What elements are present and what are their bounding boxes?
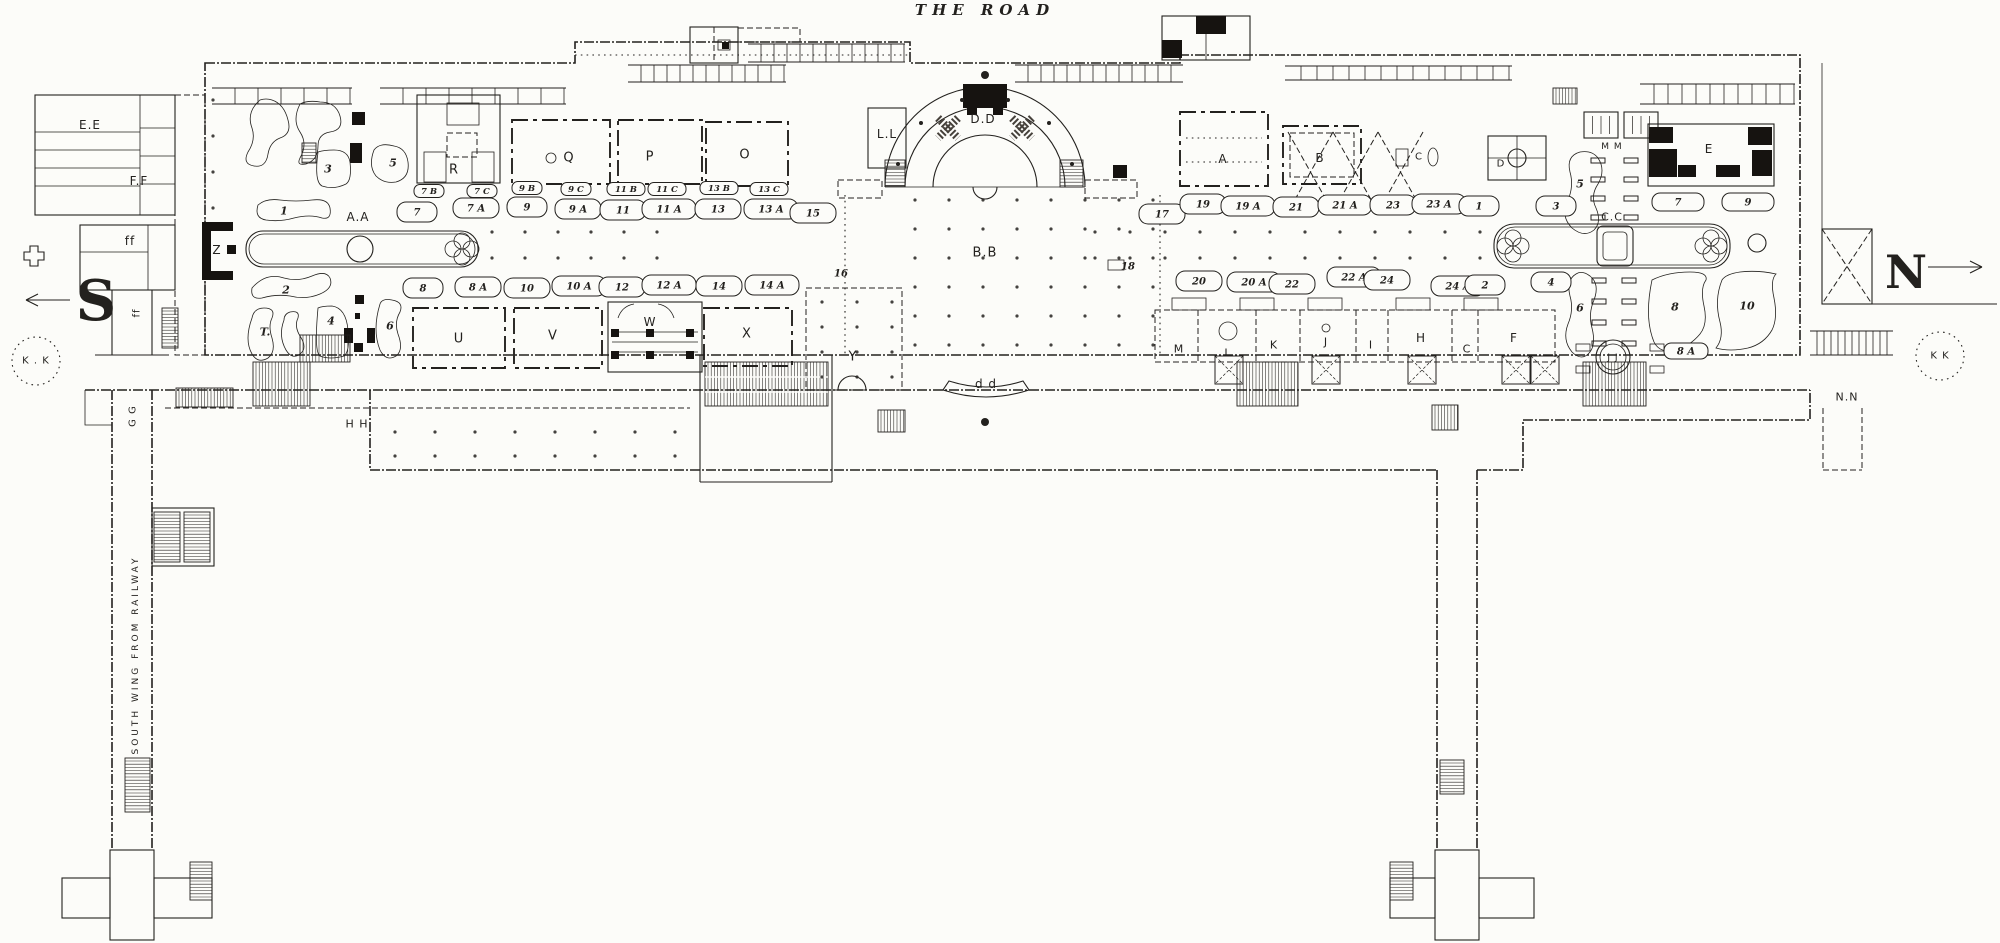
label-r8: 8 (1671, 301, 1679, 314)
label-text-n12a: 12 A (656, 281, 681, 292)
column-dots (1083, 227, 1086, 230)
garden-benches (1624, 196, 1638, 201)
label-wing-text: SOUTH WING FROM RAILWAY (131, 555, 141, 754)
label-n11a: 11 A (642, 199, 696, 219)
label-text-court-r: R (449, 163, 459, 178)
label-n23: 23 (1370, 195, 1416, 215)
label-r9: 9 (1722, 193, 1774, 211)
column-dots (1070, 162, 1074, 166)
label-s13c: 13 C (750, 183, 788, 196)
column-dots (473, 454, 476, 457)
label-n16: 16 (834, 269, 848, 280)
label-r5: 5 (1576, 178, 1584, 191)
label-south-s: S (76, 268, 116, 334)
column-dots (890, 375, 893, 378)
column-dots (1338, 256, 1341, 259)
fountain-basin-cc (1494, 224, 1730, 268)
label-text-n24: 24 (1379, 276, 1394, 287)
label-text-court-b: B (1315, 151, 1324, 165)
label-court-q: Q (563, 151, 574, 166)
label-text-n13a: 13 A (758, 205, 783, 216)
fountain-basin-aa (454, 233, 470, 249)
right-end-structures (24, 246, 44, 266)
label-text-court-u: U (454, 332, 465, 347)
label-text-n21: 21 (1288, 203, 1303, 214)
label-text-court-o: O (739, 148, 750, 163)
label-n17: 17 (1139, 204, 1185, 224)
label-s13b: 13 B (700, 182, 738, 195)
label-n8: 8 (403, 278, 443, 298)
column-dots (820, 325, 823, 328)
label-text-court-j: J (1323, 336, 1328, 349)
label-text-n2: 2 (1481, 281, 1489, 292)
fountain-basin-aa (246, 231, 479, 267)
label-text-r10: 10 (1739, 300, 1755, 313)
label-n2: 2 (1465, 275, 1505, 295)
upper-courts (1180, 112, 1268, 186)
right-end-structures (1928, 261, 1982, 273)
crossed-piers (1408, 356, 1436, 384)
column-dots (1151, 343, 1154, 346)
column-dots (890, 350, 893, 353)
column-dots (433, 454, 436, 457)
column-dots (1151, 314, 1154, 317)
label-n18: 18 (1121, 262, 1135, 273)
label-court-o: O (739, 148, 750, 163)
label-ff-wing: ff (132, 308, 143, 317)
label-n11: 11 (600, 200, 646, 220)
column-dots (855, 375, 858, 378)
column-dots (913, 285, 916, 288)
column-dots (1093, 230, 1096, 233)
upper-courts (1396, 149, 1408, 166)
left-garden-beds (246, 99, 289, 166)
label-g6: 6 (386, 320, 394, 333)
label-text-court-c-lower: C (1463, 343, 1472, 356)
label-text-n23: 23 (1385, 201, 1400, 212)
black-accents (367, 328, 375, 343)
label-n1: 1 (1459, 196, 1499, 216)
garden-benches (1622, 299, 1636, 304)
label-text-court-p: P (646, 150, 655, 165)
label-text-road-title: THE ROAD (915, 1, 1055, 19)
fountain-basin-aa (347, 236, 373, 262)
column-dots (556, 230, 559, 233)
label-text-bb: B.B (973, 246, 998, 261)
column-dots (1408, 230, 1411, 233)
terrace-and-wings (1437, 470, 1477, 850)
column-dots (1049, 227, 1052, 230)
column-dots (622, 230, 625, 233)
column-dots (981, 227, 984, 230)
crossed-piers (1215, 356, 1559, 384)
label-r7: 7 (1652, 193, 1704, 211)
label-text-court-m: M (1174, 343, 1185, 356)
label-text-court-c-upper: C (1415, 152, 1423, 163)
column-dots (1151, 285, 1154, 288)
label-n20: 20 (1176, 271, 1222, 291)
column-dots (1015, 256, 1018, 259)
label-text-n8a: 8 A (469, 283, 487, 294)
stair-hatches (1553, 88, 1577, 104)
black-accents (686, 351, 694, 359)
garden-benches (1624, 158, 1638, 163)
label-n9: 9 (507, 197, 547, 217)
column-dots (655, 256, 658, 259)
crossed-piers (1502, 356, 1530, 384)
label-ff-upper: F.F (130, 174, 149, 188)
column-dots (1117, 256, 1120, 259)
black-accents (646, 329, 654, 337)
label-kk-right: K K (1930, 351, 1949, 362)
fountain-basin-cc (1603, 232, 1627, 260)
black-accents (227, 245, 236, 254)
label-text-s11b: 11 B (615, 185, 637, 195)
black-accents (354, 343, 363, 352)
label-r6: 6 (1576, 302, 1584, 315)
column-dots (1049, 198, 1052, 201)
label-text-n20: 20 (1191, 277, 1206, 288)
label-s7b: 7 B (414, 185, 444, 198)
upper-courts (546, 153, 556, 163)
right-end-structures (26, 294, 70, 306)
label-text-g6: 6 (386, 320, 394, 333)
column-dots (1049, 256, 1052, 259)
label-court-d: D (1497, 159, 1506, 170)
column-dots (490, 256, 493, 259)
left-annex-rooms (35, 95, 205, 355)
black-accents (1162, 40, 1182, 58)
stair-hatches (878, 410, 905, 432)
label-text-court-h: H (1416, 331, 1426, 345)
column-dots (593, 454, 596, 457)
label-text-n23a: 23 A (1425, 200, 1451, 211)
orchestra-semicircle (933, 135, 1037, 187)
column-dots (633, 454, 636, 457)
label-r10: 10 (1739, 300, 1755, 313)
label-text-kk-left: K . K (22, 356, 50, 367)
black-accents (1196, 16, 1226, 34)
plan-labels: THE ROADSNE.EF.FffffZA.ARQPOL.LD.DB.BUVW… (22, 1, 1949, 755)
label-text-court-k: K (1270, 339, 1278, 352)
label-hh: H H (345, 418, 368, 431)
column-dots (896, 162, 900, 166)
right-court-band (1308, 298, 1342, 310)
terrace-and-wings (700, 355, 832, 482)
column-dots (1198, 256, 1201, 259)
label-text-n7: 7 (414, 208, 421, 219)
label-text-r6: 6 (1576, 302, 1584, 315)
right-end-structures (1822, 229, 1872, 304)
label-n21: 21 (1273, 197, 1319, 217)
column-dots (947, 198, 950, 201)
column-dots (1303, 230, 1306, 233)
column-dots (673, 430, 676, 433)
label-n14a: 14 A (745, 275, 799, 295)
terrace-and-wings (110, 850, 154, 940)
label-n3: 3 (1536, 196, 1576, 216)
terrace-and-wings (85, 390, 112, 425)
column-dots (947, 314, 950, 317)
lower-courts (806, 288, 902, 390)
label-court-v: V (548, 329, 558, 344)
crossed-piers (1531, 356, 1559, 384)
column-dots (1233, 230, 1236, 233)
left-garden-beds (257, 200, 330, 221)
label-text-court-i: I (1369, 339, 1373, 352)
label-text-n10a: 10 A (566, 282, 591, 293)
label-text-s13b: 13 B (708, 184, 730, 194)
crossed-piers (1215, 356, 1243, 384)
column-dots (589, 230, 592, 233)
column-dots (589, 256, 592, 259)
column-dots (1049, 314, 1052, 317)
column-dots (913, 343, 916, 346)
column-dots (890, 300, 893, 303)
crossed-piers (1312, 356, 1340, 384)
garden-benches (1624, 215, 1638, 220)
column-dots (981, 314, 984, 317)
label-text-hh: H H (345, 418, 368, 431)
terrace-and-wings (152, 508, 214, 566)
black-accents (1649, 149, 1677, 177)
black-accents (355, 295, 364, 304)
column-dots (553, 454, 556, 457)
label-text-gg: G G (128, 405, 139, 427)
label-text-n7a: 7 A (467, 204, 485, 215)
label-n10: 10 (504, 278, 550, 298)
label-road-title: THE ROAD (915, 1, 1055, 19)
column-dots (1151, 227, 1154, 230)
label-n22: 22 (1269, 274, 1315, 294)
label-text-court-a: A (1218, 152, 1227, 166)
label-text-n4: 4 (1548, 278, 1555, 289)
column-dots (913, 256, 916, 259)
column-dots (1117, 227, 1120, 230)
orchestra-semicircle (1085, 180, 1137, 198)
label-z: Z (212, 243, 221, 257)
fountain-basin-aa (249, 234, 475, 264)
fountain-basin-cc (1497, 227, 1727, 265)
label-n24: 24 (1364, 270, 1410, 290)
column-dots (1083, 256, 1086, 259)
label-n15: 15 (790, 203, 836, 223)
label-text-ff-upper: F.F (130, 174, 149, 188)
label-text-n21a: 21 A (1331, 201, 1357, 212)
stair-hatches (154, 512, 180, 562)
label-text-ff-wing: ff (132, 308, 143, 317)
column-dots (523, 230, 526, 233)
label-g1: 1 (280, 205, 288, 218)
label-text-n11: 11 (616, 206, 630, 217)
black-accents (611, 329, 619, 337)
orchestra-semicircle (963, 84, 1007, 108)
garden-benches (1622, 320, 1636, 325)
label-text-g4: 4 (327, 315, 335, 328)
label-s11b: 11 B (607, 183, 645, 196)
label-text-s7c: 7 C (474, 187, 490, 197)
column-dots (1047, 121, 1051, 125)
floor-plan-canvas: THE ROADSNE.EF.FffffZA.ARQPOL.LD.DB.BUVW… (0, 0, 2000, 943)
label-bb: B.B (973, 246, 998, 261)
column-dots (1015, 198, 1018, 201)
orchestra-semicircle (1012, 118, 1032, 138)
garden-benches (1592, 341, 1606, 346)
column-dots (1015, 314, 1018, 317)
column-dots (1198, 230, 1201, 233)
label-n12a: 12 A (642, 275, 696, 295)
label-court-l: L (1224, 347, 1231, 360)
column-dots (1083, 198, 1086, 201)
label-text-n9: 9 (524, 203, 531, 214)
fountain-basin-aa (454, 249, 470, 265)
stair-hatches (125, 758, 150, 812)
label-nn: N.N (1836, 391, 1859, 404)
label-text-z: Z (212, 243, 221, 257)
orchestra-semicircle (973, 187, 997, 199)
label-text-wing-text: SOUTH WING FROM RAILWAY (131, 555, 141, 754)
label-g5: 5 (389, 157, 397, 170)
label-text-court-l: L (1224, 347, 1231, 360)
stair-hatches (1440, 760, 1464, 794)
column-dots (1443, 230, 1446, 233)
label-cc-basin: C.C (1601, 211, 1623, 224)
column-dots (633, 430, 636, 433)
left-garden-beds (252, 273, 331, 298)
terrace-and-wings (62, 878, 110, 918)
label-text-g1: 1 (280, 205, 288, 218)
right-court-band (1396, 298, 1430, 310)
column-dots (490, 230, 493, 233)
garden-benches (1592, 320, 1606, 325)
label-text-dd-orchestra: D.D (970, 112, 995, 126)
terrace-and-wings (62, 355, 1862, 940)
column-dots (1338, 230, 1341, 233)
label-text-n15: 15 (806, 209, 820, 220)
column-dots (913, 314, 916, 317)
black-accents (686, 329, 694, 337)
label-text-court-y: Y (848, 350, 858, 365)
column-dots (1268, 230, 1271, 233)
lower-courts (838, 376, 866, 390)
left-annex-rooms (35, 95, 175, 215)
black-accents (1752, 150, 1772, 176)
label-g2: 2 (281, 284, 290, 297)
column-dots (890, 325, 893, 328)
label-court-e: E (1705, 142, 1714, 156)
column-dots (1015, 343, 1018, 346)
label-ll: L.L (877, 127, 897, 141)
label-mm: M M (1601, 142, 1622, 152)
label-n19: 19 (1180, 194, 1226, 214)
label-text-court-w: W (644, 315, 657, 329)
black-accents (611, 351, 619, 359)
label-jj: J J (1606, 353, 1618, 363)
right-court-band (1464, 298, 1498, 310)
column-dots (919, 121, 923, 125)
column-dots (473, 430, 476, 433)
floor-plan-page: THE ROADSNE.EF.FffffZA.ARQPOL.LD.DB.BUVW… (0, 0, 2000, 943)
column-dots (1443, 256, 1446, 259)
column-dots (947, 343, 950, 346)
label-text-court-q: Q (563, 151, 574, 166)
label-text-g2: 2 (281, 284, 290, 297)
label-text-south-s: S (76, 268, 116, 334)
black-accents (646, 351, 654, 359)
column-dots (1408, 256, 1411, 259)
black-accents (355, 313, 360, 319)
stair-hatches (184, 512, 210, 562)
label-text-s11c: 11 C (656, 185, 678, 195)
label-text-n19a: 19 A (1235, 202, 1260, 213)
label-text-ll: L.L (877, 127, 897, 141)
label-gg: G G (128, 405, 139, 427)
column-dots (393, 454, 396, 457)
black-accents (722, 42, 729, 49)
fountain-basin-cc (1748, 234, 1766, 252)
garden-benches (1622, 278, 1636, 283)
stair-hatches (705, 362, 828, 406)
column-dots (1015, 285, 1018, 288)
column-dots (981, 285, 984, 288)
label-text-r8a: 8 A (1677, 347, 1695, 358)
black-accents (1678, 165, 1696, 177)
label-n4: 4 (1531, 272, 1571, 292)
label-text-dd-screen: d d (975, 377, 997, 391)
black-accents (1748, 127, 1772, 145)
label-g3: 3 (324, 163, 332, 176)
column-dots (1151, 256, 1154, 259)
black-accents (344, 328, 353, 343)
column-dots (673, 454, 676, 457)
column-dots (981, 343, 984, 346)
label-text-n11a: 11 A (656, 205, 681, 216)
label-text-s9b: 9 B (519, 184, 535, 194)
label-t-garden: T. (260, 326, 271, 339)
column-dots (655, 230, 658, 233)
column-dots (433, 430, 436, 433)
column-dots (1268, 256, 1271, 259)
terrace-and-wings (1479, 878, 1534, 918)
label-north-n: N (1885, 245, 1927, 299)
label-court-u: U (454, 332, 465, 347)
column-dots (393, 430, 396, 433)
label-text-court-f: F (1510, 331, 1518, 345)
label-s11c: 11 C (648, 183, 686, 196)
label-s7c: 7 C (467, 185, 497, 198)
column-dots (1478, 256, 1481, 259)
label-text-mm: M M (1601, 142, 1622, 152)
label-ff-lower: ff (125, 234, 135, 248)
label-n13: 13 (695, 199, 741, 219)
label-text-court-x: X (742, 327, 752, 342)
label-aa-basin: A.A (346, 210, 369, 224)
label-g4: 4 (327, 315, 335, 328)
label-text-s13c: 13 C (758, 185, 780, 195)
label-court-j: J (1323, 336, 1328, 349)
left-garden-beds (296, 101, 341, 164)
label-text-kk-right: K K (1930, 351, 1949, 362)
terrace-and-wings (1435, 850, 1479, 940)
black-accents (1113, 165, 1127, 178)
label-text-court-d: D (1497, 159, 1506, 170)
upper-courts (618, 120, 702, 184)
label-text-r9: 9 (1745, 198, 1752, 209)
left-garden-beds (281, 312, 304, 357)
column-dots (1478, 230, 1481, 233)
column-dots (211, 134, 214, 137)
left-garden-beds (317, 150, 351, 188)
